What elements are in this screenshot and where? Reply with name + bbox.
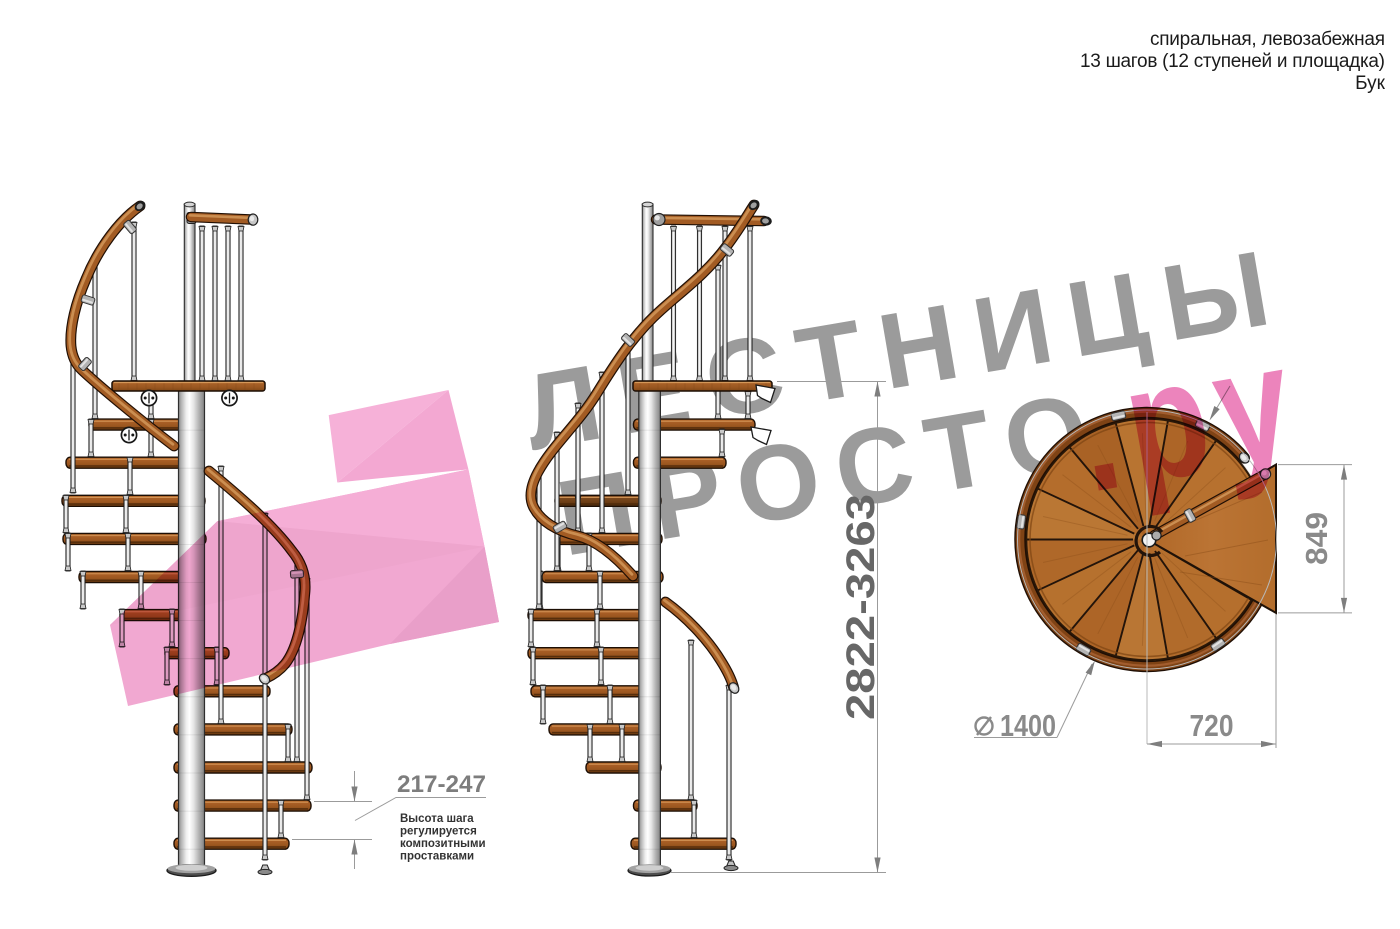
svg-text:.ру: .ру [1064, 307, 1315, 527]
